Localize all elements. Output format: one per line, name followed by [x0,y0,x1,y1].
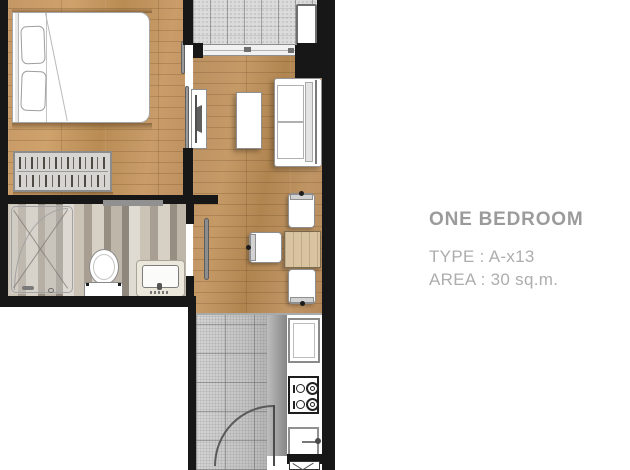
pillow-1 [20,26,45,65]
toilet-hinge-right [118,283,121,286]
wall-bathroom-right-lower [186,276,194,296]
kitchen-faucet-dot [315,438,321,444]
balcony-door-handle-1 [244,47,251,52]
unit-title: ONE BEDROOM [429,209,619,231]
wardrobe-divider [17,171,108,172]
floor-transition-line [196,313,322,315]
stove [288,376,319,414]
stove-knob-2 [296,400,305,409]
wardrobe-rail-top [19,157,106,169]
wall-bathroom-right-upper [186,204,194,224]
entry-door-leaf [273,405,275,466]
tv [195,95,197,143]
vanity-handles [150,291,168,294]
bed-bottom-shadow [12,123,152,130]
coffee-table [236,92,262,149]
floorplan-page: ONE BEDROOM TYPE : A-x13 AREA : 30 sq.m. [0,0,630,470]
bathroom-sliding-door [204,218,209,280]
sofa-back-line [315,80,317,164]
dining-chair-top-knob [299,191,304,196]
balcony-door-handle-2 [288,48,294,53]
ac-unit [296,4,317,46]
wall-kitchen-left [188,307,196,470]
refrigerator-inner [293,323,315,358]
stove-knob-bar-2 [293,401,295,409]
wall-balcony-right [317,0,335,48]
sofa-backrest [305,82,313,162]
dining-table [284,231,321,268]
pillow-2 [20,71,46,112]
wardrobe-rail-bottom [19,175,106,187]
wall-partition-top [183,0,193,45]
dining-chair-left-knob [246,245,251,250]
bed-headboard [15,13,19,122]
bed-sheet-line [46,13,47,122]
unit-type-line: TYPE : A-x13 [429,247,619,267]
bedroom-sliding-door-panel-1 [181,41,185,74]
dining-chair-bottom-knob [300,301,305,306]
stove-burner-1-center [310,386,315,391]
wall-balcony-stub-left [193,43,203,58]
vanity-faucet [157,283,162,290]
bathroom-mirror-shelf [103,200,163,206]
refrigerator [288,318,320,363]
toilet-hinge-left [86,283,89,286]
sofa-cushion-2 [277,122,304,159]
balcony-sliding-door-frame [202,44,298,56]
tv-back [197,105,202,133]
unit-area-line: AREA : 30 sq.m. [429,270,619,290]
stove-knob-1 [296,384,305,393]
bedroom-sliding-door-panel-2 [185,86,189,150]
toilet-seat [93,254,115,280]
stove-knob-bar-1 [293,385,295,393]
shower-fitting-icon [22,286,34,290]
wall-left [0,0,8,307]
sofa-cushion-1 [277,85,304,122]
kitchen-sink [288,427,319,456]
wall-bathroom-bottom [0,296,196,307]
unit-info-panel: ONE BEDROOM TYPE : A-x13 AREA : 30 sq.m. [429,209,619,290]
wardrobe [13,151,112,192]
stove-burner-2-center [310,402,315,407]
wall-partition-bottom [183,148,193,196]
shower-drain-icon [48,288,54,293]
wall-right [322,45,335,470]
